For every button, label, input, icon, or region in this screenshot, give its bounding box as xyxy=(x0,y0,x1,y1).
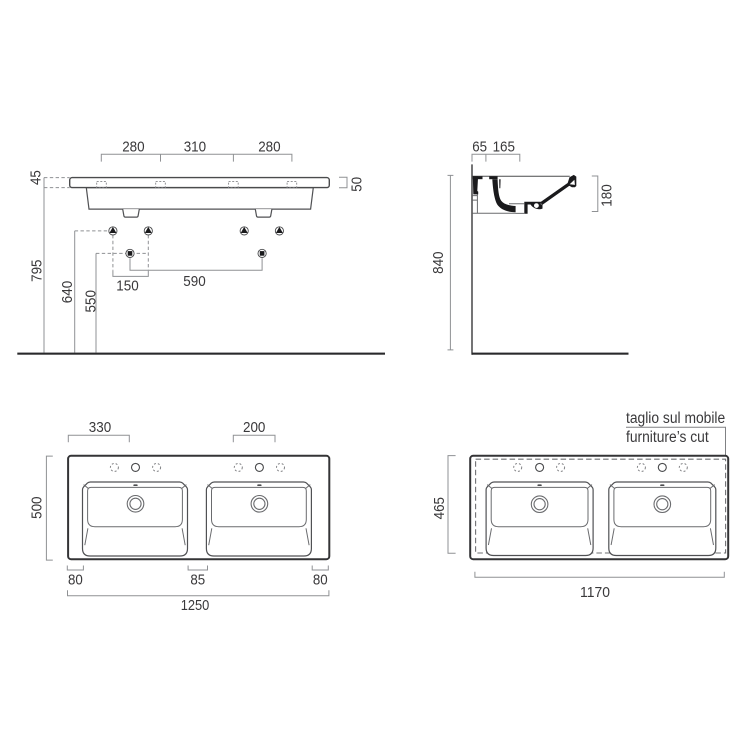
svg-text:50: 50 xyxy=(348,177,365,192)
svg-text:45: 45 xyxy=(27,170,44,185)
svg-text:795: 795 xyxy=(28,260,45,282)
svg-text:65: 65 xyxy=(472,138,487,155)
svg-text:200: 200 xyxy=(243,419,265,436)
svg-text:550: 550 xyxy=(83,290,100,312)
svg-text:180: 180 xyxy=(599,184,616,206)
svg-text:80: 80 xyxy=(68,571,83,588)
svg-text:85: 85 xyxy=(190,571,205,588)
svg-text:500: 500 xyxy=(29,497,46,519)
svg-text:165: 165 xyxy=(493,138,515,155)
svg-text:330: 330 xyxy=(89,419,111,436)
svg-text:furniture’s cut: furniture’s cut xyxy=(626,429,709,446)
svg-text:taglio sul mobile: taglio sul mobile xyxy=(626,410,725,427)
svg-text:465: 465 xyxy=(431,497,448,519)
svg-text:640: 640 xyxy=(59,281,76,303)
svg-text:310: 310 xyxy=(184,138,206,155)
svg-text:590: 590 xyxy=(183,273,205,290)
svg-text:80: 80 xyxy=(313,571,328,588)
svg-text:840: 840 xyxy=(430,252,447,274)
svg-text:1170: 1170 xyxy=(580,584,610,601)
svg-text:280: 280 xyxy=(258,138,280,155)
svg-text:280: 280 xyxy=(122,138,144,155)
svg-text:150: 150 xyxy=(116,278,138,295)
svg-text:1250: 1250 xyxy=(181,597,210,614)
